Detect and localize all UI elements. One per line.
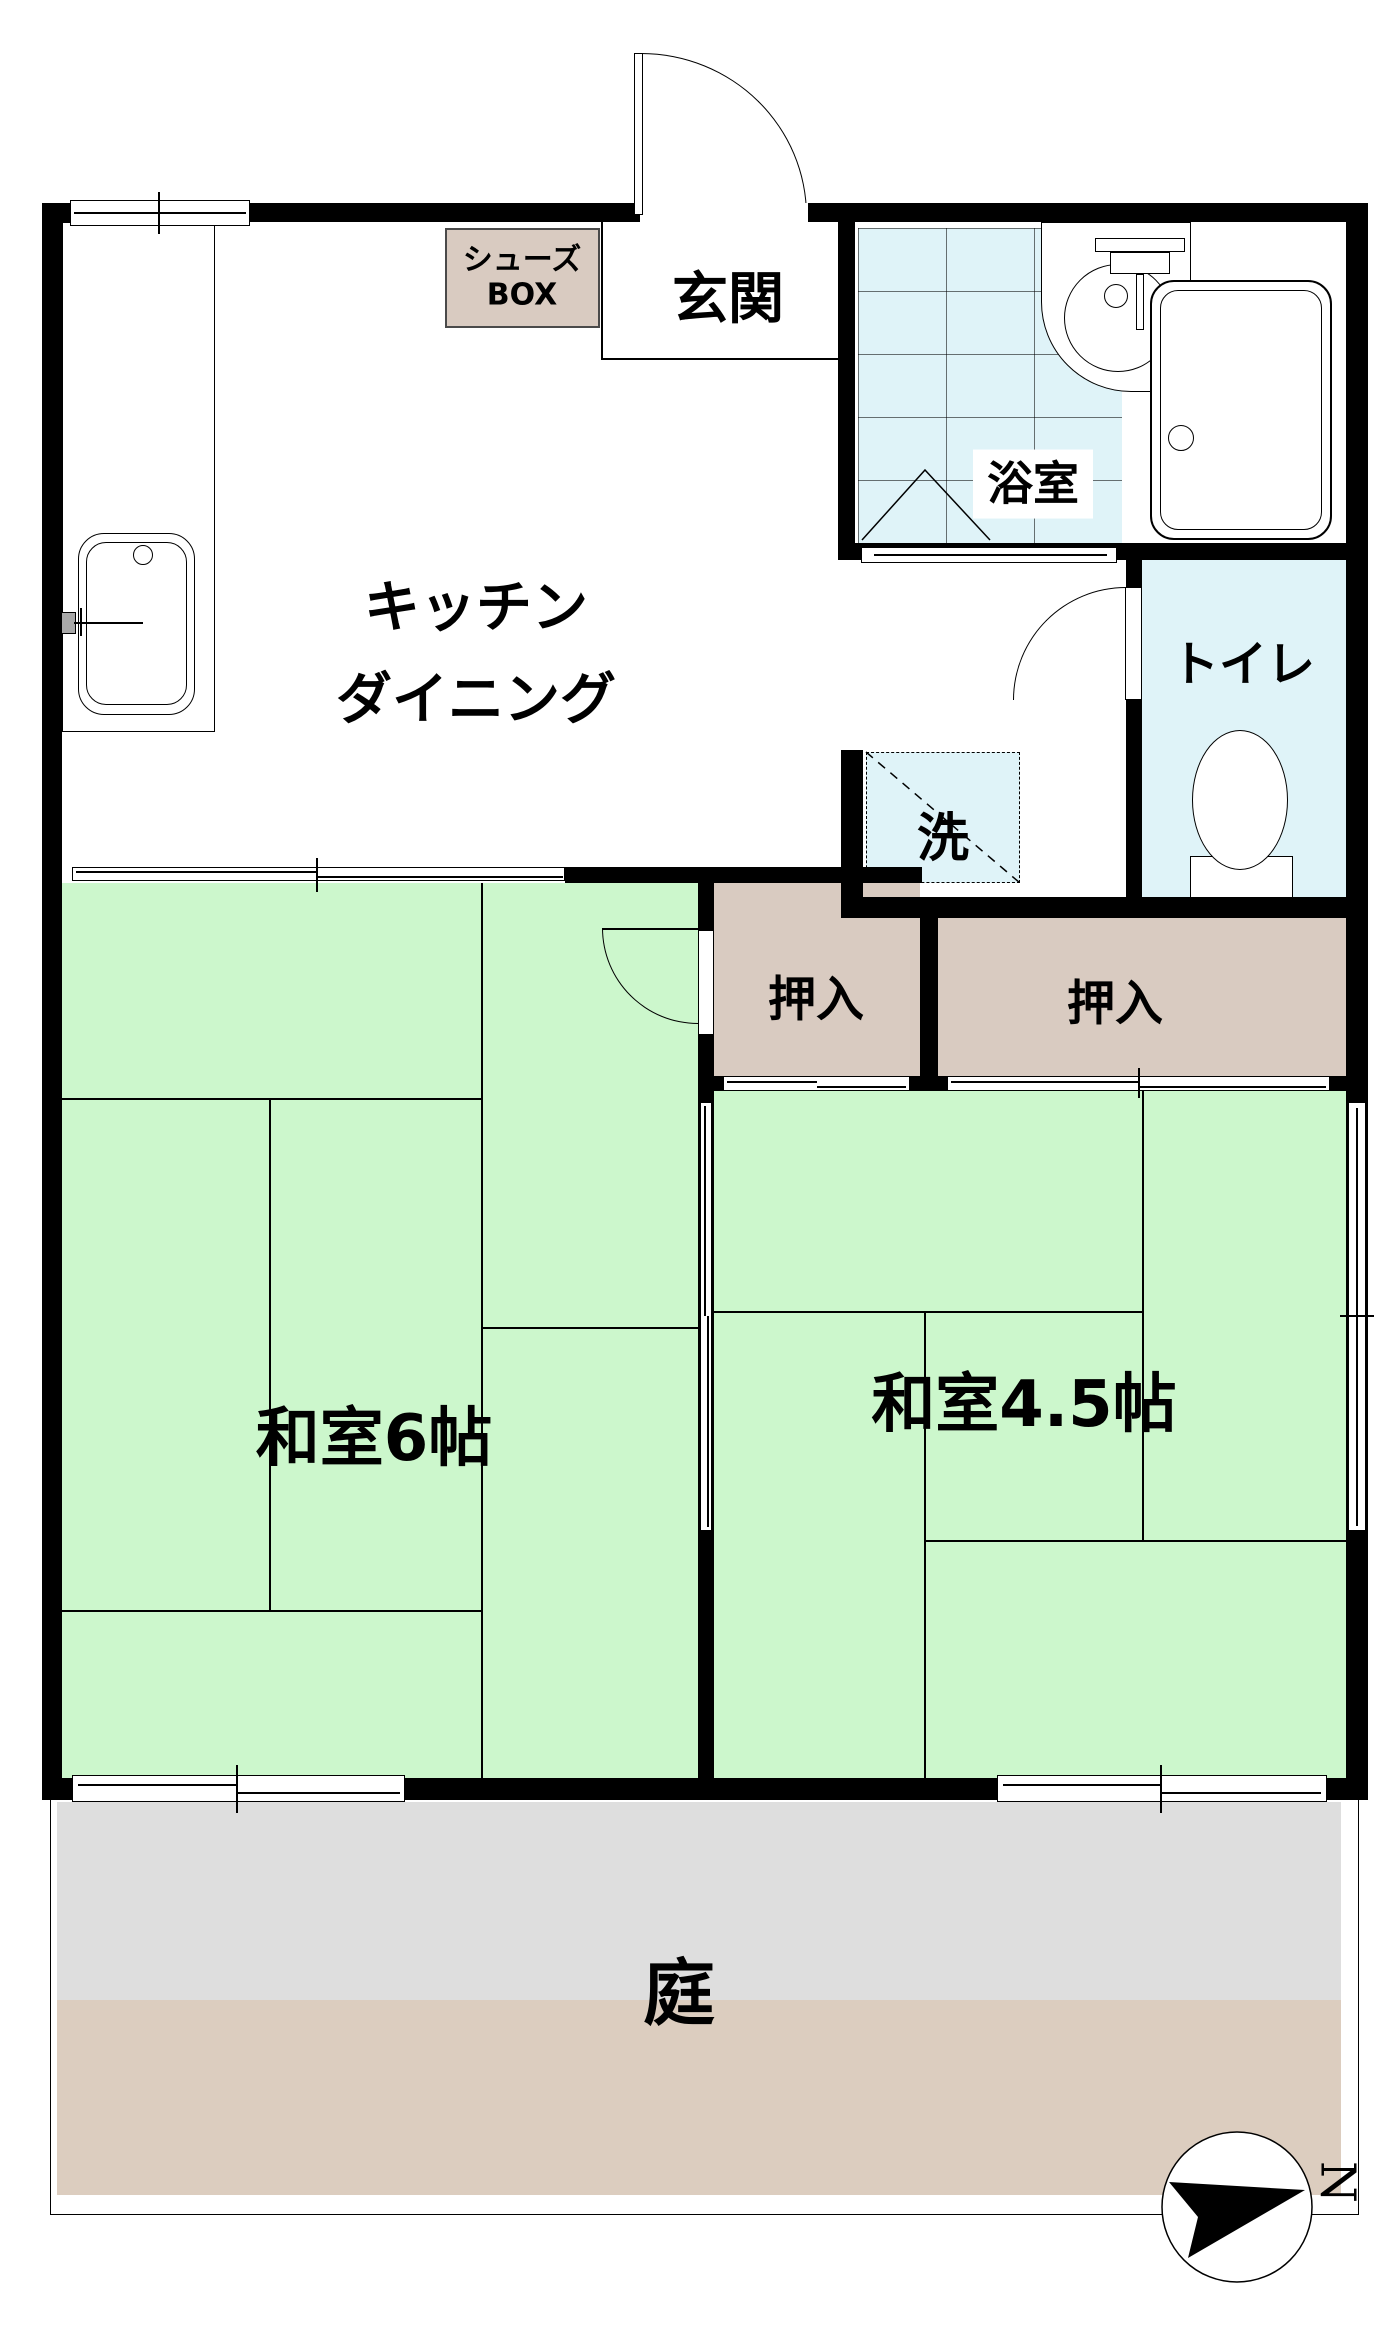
- tatami-line: [924, 1540, 1346, 1542]
- fusuma-tick: [1138, 1068, 1140, 1098]
- sliding-panel-line: [318, 876, 563, 878]
- wall-left: [42, 203, 62, 1800]
- genkan-edge-bottom: [601, 358, 838, 360]
- window-line: [1161, 1792, 1321, 1794]
- tatami-line: [62, 1098, 482, 1100]
- window-tick: [1160, 1765, 1162, 1813]
- washitsu6-garden-window: [72, 1775, 405, 1802]
- entrance-door-swing-arc: [641, 53, 807, 216]
- window-tick: [1340, 1315, 1374, 1317]
- shoes-box-label-line1: シューズ: [463, 244, 582, 279]
- kitchen-label: キッチン ダイニング: [336, 563, 616, 748]
- kitchen-window-tick: [158, 192, 160, 234]
- bathtub-drain: [1168, 425, 1194, 451]
- kitchen-washitsu-sliding-door: [72, 867, 565, 881]
- closet-left-label: 押入: [768, 972, 864, 1027]
- washitsu45-garden-window: [997, 1775, 1327, 1802]
- kitchen-sink-inner: [86, 542, 187, 705]
- washitsu-6-floor: [62, 883, 698, 1778]
- fusuma-line: [1139, 1086, 1326, 1088]
- sliding-panel-line: [76, 871, 316, 873]
- laundry-label: 洗: [917, 810, 969, 870]
- closet-right-label: 押入: [1067, 976, 1163, 1031]
- fusuma-line: [707, 1316, 709, 1527]
- washitsu-6-label: 和室6帖: [256, 1403, 493, 1477]
- wall-right: [1346, 203, 1368, 1800]
- window-line: [78, 1784, 238, 1786]
- kitchen-label-line1: キッチン: [336, 563, 616, 655]
- tatami-line: [62, 1610, 482, 1612]
- tatami-line: [481, 883, 483, 1778]
- washbasin-faucet-body: [1110, 252, 1170, 274]
- wall-hall-left: [841, 750, 863, 918]
- fusuma-line: [951, 1081, 1139, 1083]
- window-line: [1003, 1784, 1161, 1786]
- wall-closet-left-top: [714, 867, 922, 883]
- wall-genkan-bath: [838, 222, 855, 560]
- bathroom-label: 浴室: [973, 450, 1093, 519]
- tatami-line: [1142, 1091, 1144, 1541]
- faucet-tick: [80, 608, 82, 636]
- entrance-door-leaf: [634, 53, 643, 215]
- washbasin-handle: [1104, 284, 1128, 308]
- compass-north-label: N: [1309, 2161, 1364, 2203]
- toilet-bowl: [1192, 730, 1288, 870]
- bathtub-inner: [1160, 290, 1322, 530]
- window-tick: [236, 1765, 238, 1813]
- wall-closet-divider: [920, 918, 938, 1076]
- wall-kitchen-washitsu: [565, 867, 698, 883]
- closet-left-fusuma: [723, 1076, 910, 1091]
- washitsu6-door-opening: [698, 930, 714, 1035]
- washbasin-faucet-bar: [1095, 238, 1185, 252]
- toilet-label: トイレ: [1171, 637, 1315, 692]
- faucet-spout: [74, 622, 143, 624]
- entrance-opening: [640, 203, 808, 222]
- kitchen-window-glazing: [74, 212, 246, 214]
- shoes-box-label: シューズ BOX: [463, 244, 582, 313]
- fusuma-line: [704, 1106, 706, 1316]
- sink-drain: [133, 545, 153, 565]
- tatami-line: [714, 1311, 1143, 1313]
- toilet-door-leaf: [1125, 587, 1142, 700]
- window-line: [238, 1792, 400, 1794]
- shoes-box-label-line2: BOX: [463, 278, 582, 313]
- toilet-door-swing-arc: [1013, 587, 1126, 700]
- floor-plan: 玄関 シューズ BOX 浴室 トイレ キッチン ダイニング 洗 押入 押入 和室…: [0, 0, 1400, 2328]
- garden-label: 庭: [643, 1953, 715, 2036]
- washbasin-faucet-stem: [1136, 274, 1144, 330]
- fusuma-line: [727, 1081, 817, 1083]
- washitsu-45-label: 和室4.5帖: [871, 1369, 1176, 1443]
- wall-hall-bottom: [841, 897, 1346, 918]
- window-line: [1356, 1108, 1358, 1526]
- genkan-edge-left: [601, 222, 603, 360]
- fusuma-line: [817, 1086, 906, 1088]
- genkan-label: 玄関: [672, 268, 784, 332]
- kitchen-label-line2: ダイニング: [336, 655, 616, 747]
- washitsu-fusuma: [700, 1102, 712, 1531]
- bathroom-door-line: [874, 554, 1107, 556]
- sliding-panel-tick: [316, 858, 318, 892]
- tatami-line: [481, 1327, 698, 1329]
- tatami-line: [269, 1098, 271, 1610]
